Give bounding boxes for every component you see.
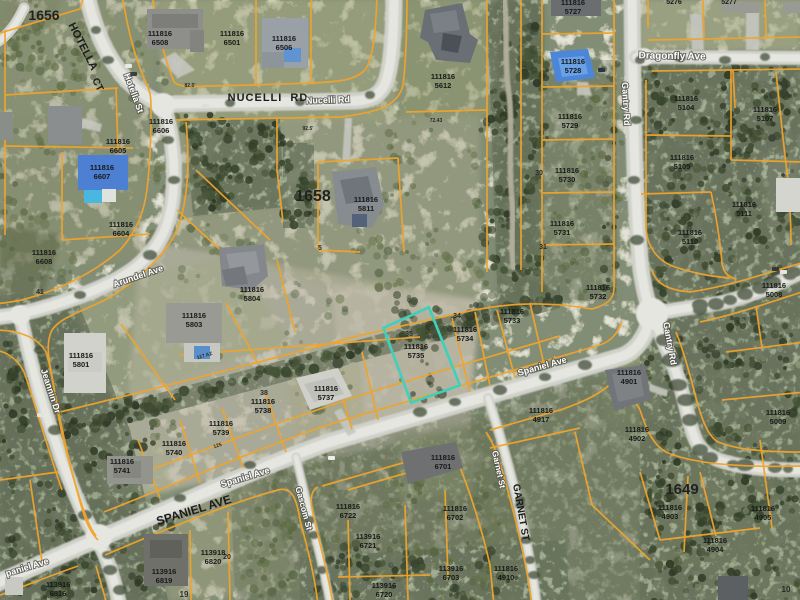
svg-text:20: 20 — [223, 554, 231, 561]
svg-text:10: 10 — [782, 585, 791, 594]
svg-text:30: 30 — [535, 170, 543, 177]
svg-text:72.43: 72.43 — [430, 118, 443, 124]
svg-text:38: 38 — [260, 390, 268, 397]
svg-text:82.5': 82.5' — [185, 83, 196, 89]
svg-text:5: 5 — [318, 245, 322, 252]
svg-text:NUCELLI RD: NUCELLI RD — [228, 92, 309, 104]
svg-text:35: 35 — [405, 331, 413, 338]
svg-text:1649: 1649 — [665, 481, 698, 498]
svg-text:5276: 5276 — [666, 0, 682, 6]
svg-text:5277: 5277 — [721, 0, 737, 6]
svg-text:19: 19 — [180, 590, 189, 599]
svg-text:Nucelli Rd: Nucelli Rd — [306, 94, 350, 106]
svg-text:41: 41 — [36, 289, 44, 296]
svg-text:92.5': 92.5' — [303, 126, 314, 132]
svg-text:Dragonfly Ave: Dragonfly Ave — [638, 50, 706, 62]
svg-text:34: 34 — [453, 313, 461, 320]
svg-text:1656: 1656 — [28, 7, 59, 23]
svg-text:31: 31 — [539, 244, 547, 251]
svg-text:1658: 1658 — [295, 188, 331, 205]
